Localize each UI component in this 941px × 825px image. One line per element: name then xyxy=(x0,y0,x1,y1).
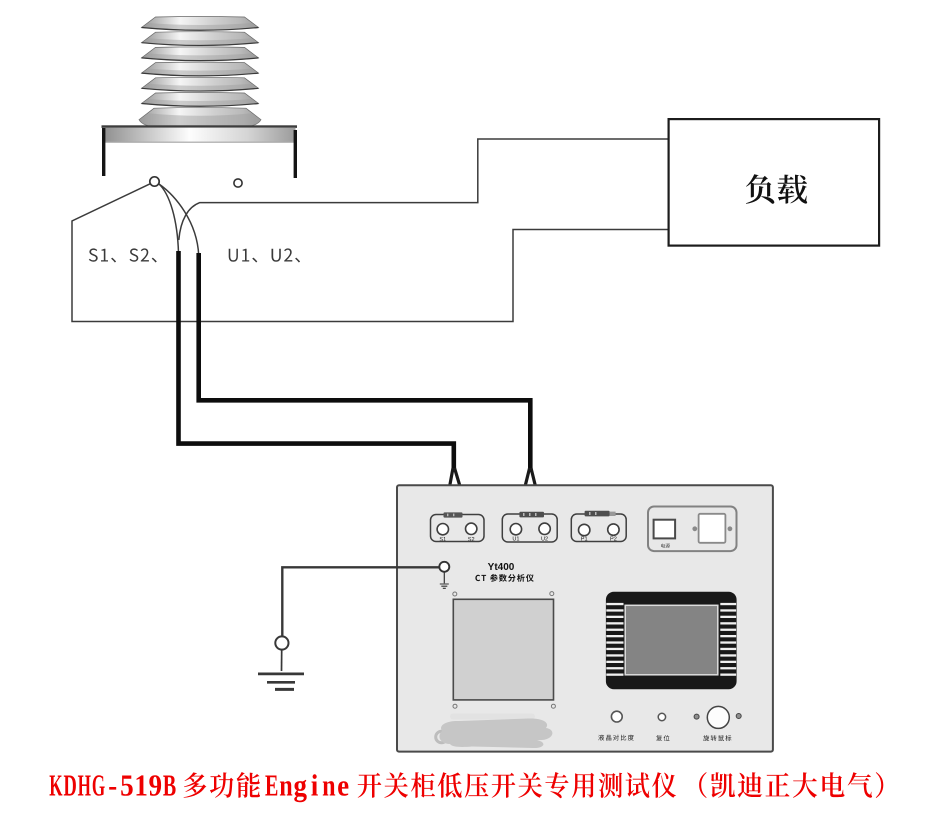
svg-text:Yt400: Yt400 xyxy=(488,562,515,573)
svg-text:S2: S2 xyxy=(468,537,475,543)
svg-text:S1: S1 xyxy=(439,537,446,543)
svg-text:P1: P1 xyxy=(581,537,588,543)
svg-text:U1: U1 xyxy=(512,537,519,543)
svg-text:U2: U2 xyxy=(541,537,548,543)
svg-text:P2: P2 xyxy=(610,537,617,543)
